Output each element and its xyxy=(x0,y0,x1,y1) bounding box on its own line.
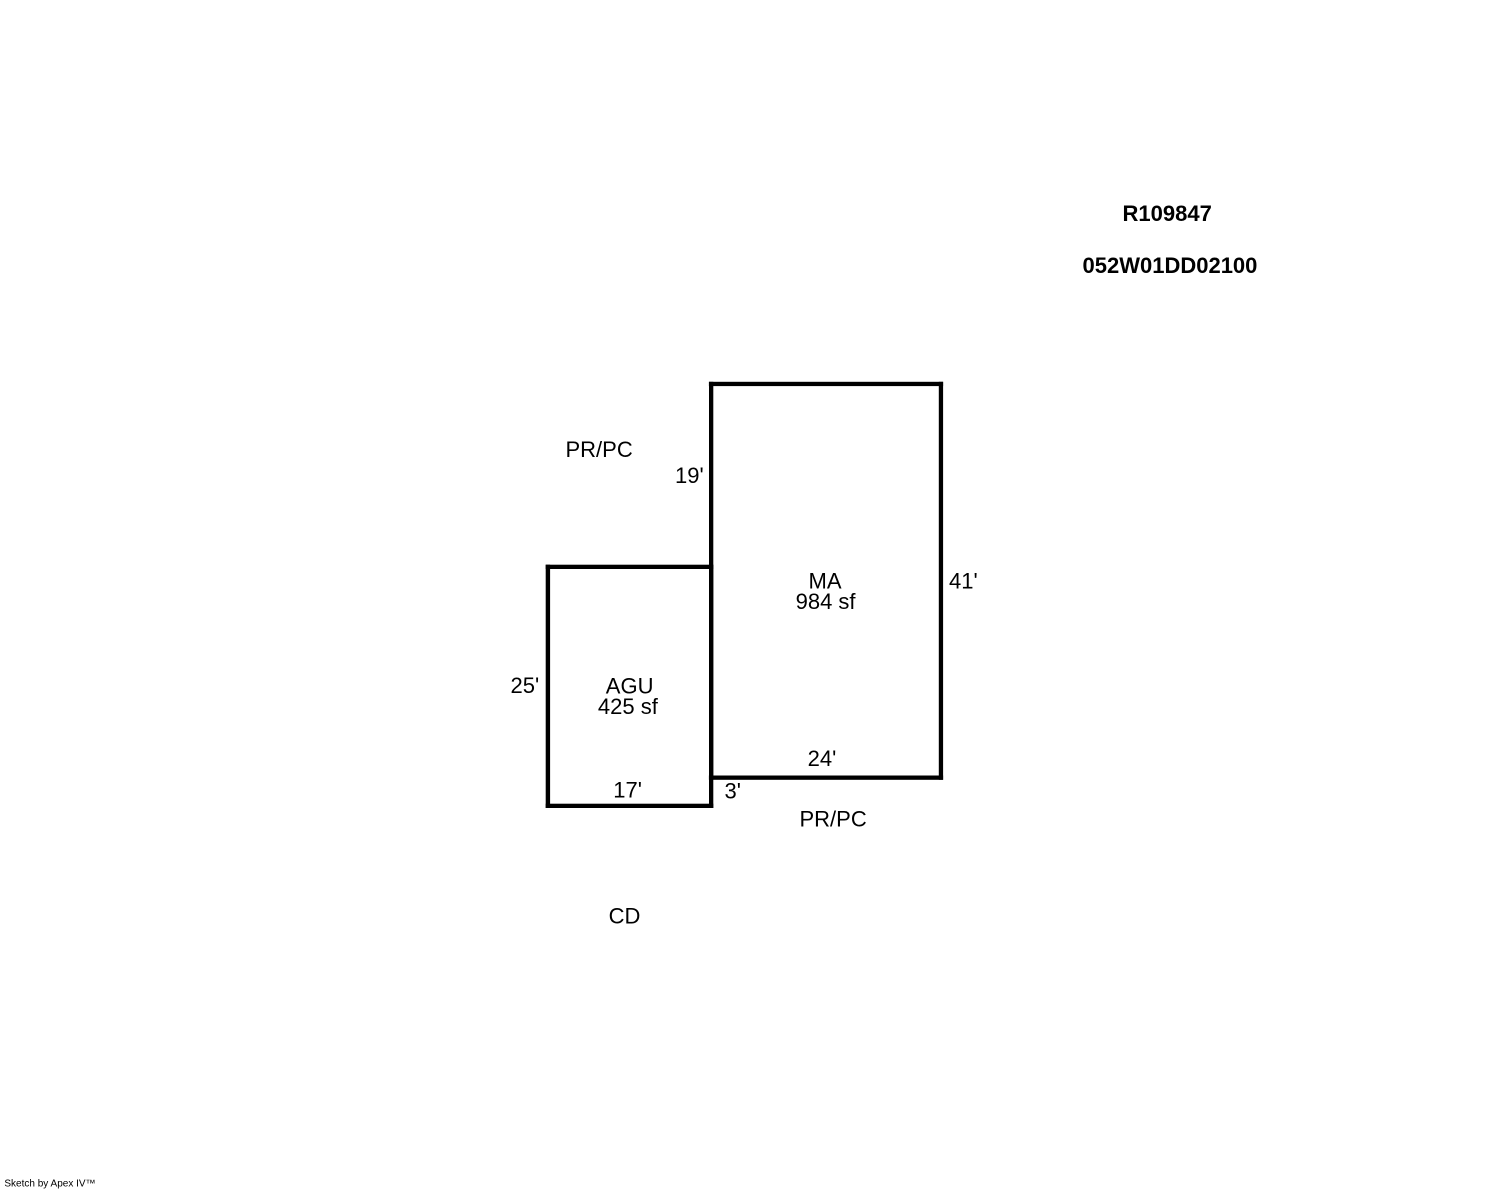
svg-text:984 sf: 984 sf xyxy=(796,589,857,614)
svg-text:19': 19' xyxy=(675,463,704,488)
svg-text:425 sf: 425 sf xyxy=(598,694,659,719)
svg-text:41': 41' xyxy=(949,569,978,594)
svg-text:052W01DD02100: 052W01DD02100 xyxy=(1083,253,1258,278)
svg-text:3': 3' xyxy=(725,779,741,804)
svg-text:CD: CD xyxy=(609,903,641,928)
svg-text:PR/PC: PR/PC xyxy=(800,807,867,832)
svg-text:24': 24' xyxy=(808,746,837,771)
svg-text:17': 17' xyxy=(613,777,642,802)
svg-text:R109847: R109847 xyxy=(1123,201,1212,226)
svg-text:PR/PC: PR/PC xyxy=(566,437,633,462)
svg-text:Sketch by Apex IV™: Sketch by Apex IV™ xyxy=(4,1179,95,1190)
svg-text:25': 25' xyxy=(511,673,540,698)
